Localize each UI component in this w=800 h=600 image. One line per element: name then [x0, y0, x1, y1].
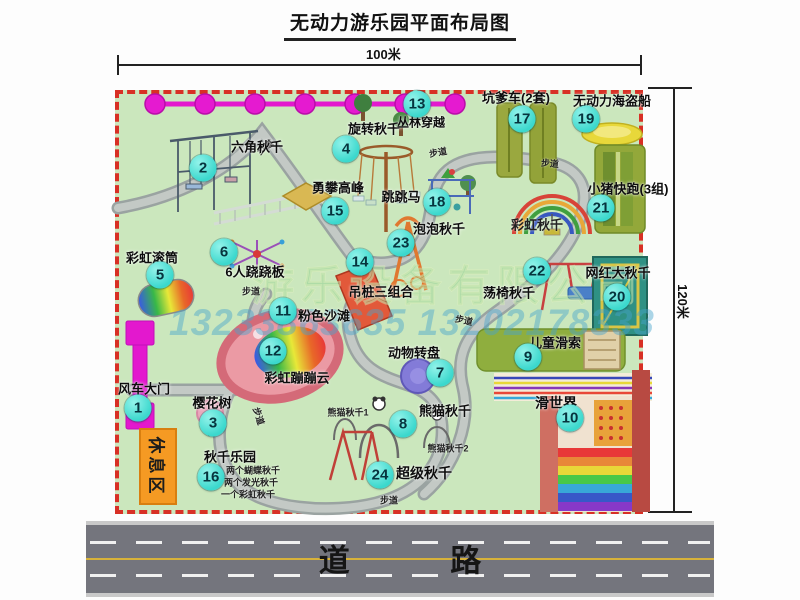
marker-badge-8: 8: [390, 411, 417, 438]
marker-label-23: 泡泡秋千: [413, 219, 465, 238]
marker-label-8: 熊猫秋千: [419, 401, 471, 420]
marker-badge-17: 17: [509, 106, 536, 133]
marker-badge-24: 24: [367, 462, 394, 489]
dim-height-tick-top: [648, 87, 692, 89]
marker-label-2: 六角秋千: [231, 137, 283, 156]
marker-label-1: 风车大门: [118, 379, 170, 398]
marker-badge-5: 5: [147, 262, 174, 289]
marker-badge-15: 15: [322, 198, 349, 225]
marker-badge-19: 19: [573, 106, 600, 133]
dim-height-tick-bottom: [648, 511, 692, 513]
road-label: 道 路: [86, 536, 714, 581]
marker-badge-4: 4: [333, 136, 360, 163]
marker-label-4: 旋转秋千: [348, 119, 400, 138]
marker-label-6: 6人跷跷板: [225, 262, 284, 281]
marker-badge-6: 6: [211, 239, 238, 266]
screenshot-root: 无动力游乐园平面布局图 100米 120米: [0, 0, 800, 600]
marker-badge-7: 7: [427, 360, 454, 387]
marker-label-15: 勇攀高峰: [312, 178, 364, 197]
label-rainbow-swing: 彩虹秋千: [511, 215, 563, 234]
rest-area-label: 休息区: [146, 437, 171, 497]
marker-badge-14: 14: [347, 249, 374, 276]
marker-label-14: 吊桩三组合: [348, 282, 413, 301]
road: 道 路: [86, 521, 714, 597]
marker-label-24: 超级秋千: [396, 463, 452, 483]
dim-width-line: [118, 64, 642, 66]
marker-badge-23: 23: [388, 230, 415, 257]
marker-badge-10: 10: [557, 405, 584, 432]
dim-width-label: 100米: [366, 44, 401, 63]
marker-badge-16: 16: [198, 464, 225, 491]
park-map: [115, 90, 643, 514]
marker-label-22: 荡椅秋千: [483, 283, 535, 302]
rest-area: 休息区: [139, 428, 177, 505]
marker-label-20: 网红大秋千: [585, 263, 650, 282]
dim-width-tick-left: [117, 55, 119, 75]
marker-badge-9: 9: [515, 344, 542, 371]
label-swing-note-3: 一个彩虹秋千: [221, 488, 275, 501]
label-footpath: 步道: [380, 494, 398, 507]
dim-width-tick-right: [640, 55, 642, 75]
marker-badge-18: 18: [424, 189, 451, 216]
marker-label-18: 跳跳马: [381, 187, 420, 206]
marker-badge-20: 20: [604, 284, 631, 311]
label-panda-swing-2: 熊猫秋千2: [427, 442, 468, 455]
marker-badge-22: 22: [524, 258, 551, 285]
label-footpath: 步道: [540, 156, 559, 171]
marker-label-11: 粉色沙滩: [298, 306, 350, 325]
marker-badge-3: 3: [200, 410, 227, 437]
label-footpath: 步道: [242, 285, 260, 298]
marker-badge-1: 1: [125, 395, 152, 422]
marker-badge-12: 12: [260, 338, 287, 365]
marker-badge-13: 13: [404, 91, 431, 118]
label-panda-swing-1: 熊猫秋千1: [327, 406, 368, 419]
page-title: 无动力游乐园平面布局图: [0, 8, 800, 41]
dim-height-label: 120米: [674, 284, 693, 319]
marker-label-17: 坑爹车(2套): [482, 88, 550, 107]
marker-label-7: 动物转盘: [388, 343, 440, 362]
marker-badge-11: 11: [270, 298, 297, 325]
marker-badge-21: 21: [588, 195, 615, 222]
page-title-text: 无动力游乐园平面布局图: [284, 8, 516, 41]
marker-badge-2: 2: [190, 155, 217, 182]
marker-label-12: 彩虹蹦蹦云: [264, 368, 329, 387]
